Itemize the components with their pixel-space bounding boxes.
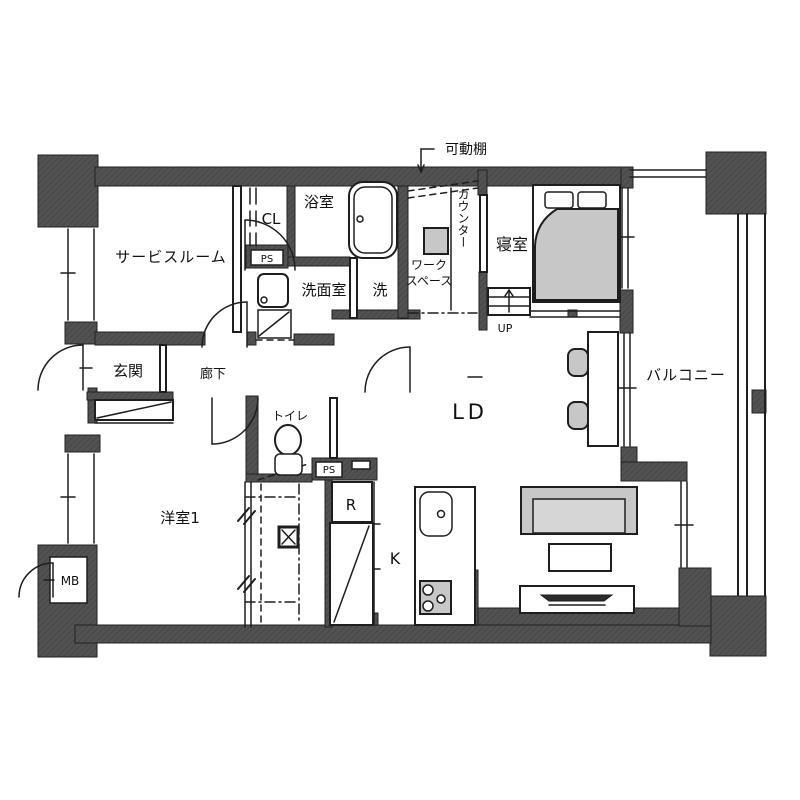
balcony-rail-block — [752, 390, 766, 413]
kitchen-counter — [415, 487, 475, 625]
balcony-label: バルコニー — [646, 366, 726, 384]
bathtub — [349, 182, 397, 258]
east-wall-seg3h — [621, 462, 687, 481]
pipe-space-2-label: PS — [323, 465, 335, 476]
pillar-southeast — [710, 596, 766, 656]
washroom-label: 洗面室 — [301, 281, 346, 299]
sofa — [521, 487, 637, 534]
pillar-northwest — [38, 155, 98, 227]
living-dining-label: LD — [452, 400, 488, 424]
west-wall-seg3 — [65, 435, 100, 452]
closet-label: CL — [262, 210, 281, 228]
west-wall-seg1 — [65, 322, 97, 344]
kitchen-sink — [420, 492, 452, 536]
ld-balcony-window-1 — [618, 333, 636, 446]
workspace-bedroom-post-mid — [479, 272, 487, 330]
service-room-label: サービスルーム — [115, 248, 227, 266]
workspace-label-line1: ワーク — [411, 258, 447, 272]
western-room-label: 洋室1 — [160, 509, 200, 527]
western-room-north-wall — [87, 392, 173, 400]
east-wall-seg2 — [620, 290, 633, 333]
washroom-south-wall — [294, 334, 334, 345]
bathroom-label: 浴室 — [304, 193, 334, 211]
entrance-door — [38, 345, 83, 390]
balcony-partition — [630, 170, 706, 177]
washbasin — [258, 274, 291, 338]
toilet-fixture — [275, 425, 302, 475]
pipe-space-2: PS — [312, 458, 377, 480]
tv — [541, 595, 612, 601]
corridor-label: 廊下 — [200, 366, 226, 382]
pillar-northeast — [706, 152, 766, 214]
dining-chair-1 — [568, 349, 588, 376]
laundry-label: 洗 — [372, 281, 387, 299]
refrigerator-label: R — [346, 496, 356, 514]
pipe-space-1-label: PS — [261, 254, 273, 265]
closet-folding-door — [250, 188, 256, 246]
bath-south-wall — [288, 257, 350, 266]
entrance-step-edge — [160, 345, 166, 392]
workspace-bedroom-post-top — [478, 170, 487, 195]
east-wall-seg4 — [679, 568, 711, 626]
coffee-table — [549, 544, 611, 571]
dining-table — [568, 332, 618, 446]
counter-label: カウンター — [456, 188, 470, 248]
bed — [533, 185, 620, 302]
up-label: UP — [498, 322, 513, 335]
movable-shelf-label: 可動棚 — [445, 142, 487, 158]
workspace-label-line2: スペース — [406, 274, 453, 288]
ld-door — [365, 347, 410, 392]
workspace-desk-chair — [424, 228, 448, 254]
tv-board — [520, 586, 634, 613]
laundry-south-wall — [332, 310, 408, 319]
south-wall — [75, 625, 711, 643]
corridor-north-stub — [247, 332, 256, 345]
corridor-north-wall — [95, 332, 205, 345]
floor-plan: PS PS MB — [0, 0, 800, 800]
entrance-label: 玄関 — [113, 362, 143, 380]
kitchen-label: K — [390, 549, 401, 568]
service-room-window — [61, 229, 94, 320]
meter-box: MB — [19, 557, 87, 603]
bedroom-stairs — [488, 288, 530, 315]
toilet-label: トイレ — [272, 409, 308, 423]
meter-box-label: MB — [61, 574, 80, 588]
bed-pillow-2 — [578, 192, 606, 208]
shoe-cabinet — [95, 400, 173, 423]
bed-pillow-1 — [545, 192, 573, 208]
western-room-window — [61, 454, 94, 543]
storage-column — [245, 484, 299, 624]
service-room-east-wall — [233, 186, 241, 332]
pipe-space-1: PS — [246, 245, 288, 268]
ld-balcony-window-2 — [675, 482, 693, 567]
pipe-shaft-box — [279, 527, 298, 547]
bath-east-wall — [398, 186, 408, 318]
tall-cabinet — [330, 523, 373, 625]
bedroom-sliding-partition — [480, 195, 487, 272]
dining-chair-2 — [568, 402, 588, 429]
kitchen-faucet — [438, 511, 445, 518]
refrigerator-space: R — [332, 482, 372, 522]
toilet-east-wall — [330, 398, 337, 458]
western-room-east-wall — [238, 482, 255, 627]
bedroom-label: 寝室 — [496, 235, 528, 254]
laundry-west-wall — [350, 258, 357, 318]
bed-blanket — [535, 209, 618, 300]
